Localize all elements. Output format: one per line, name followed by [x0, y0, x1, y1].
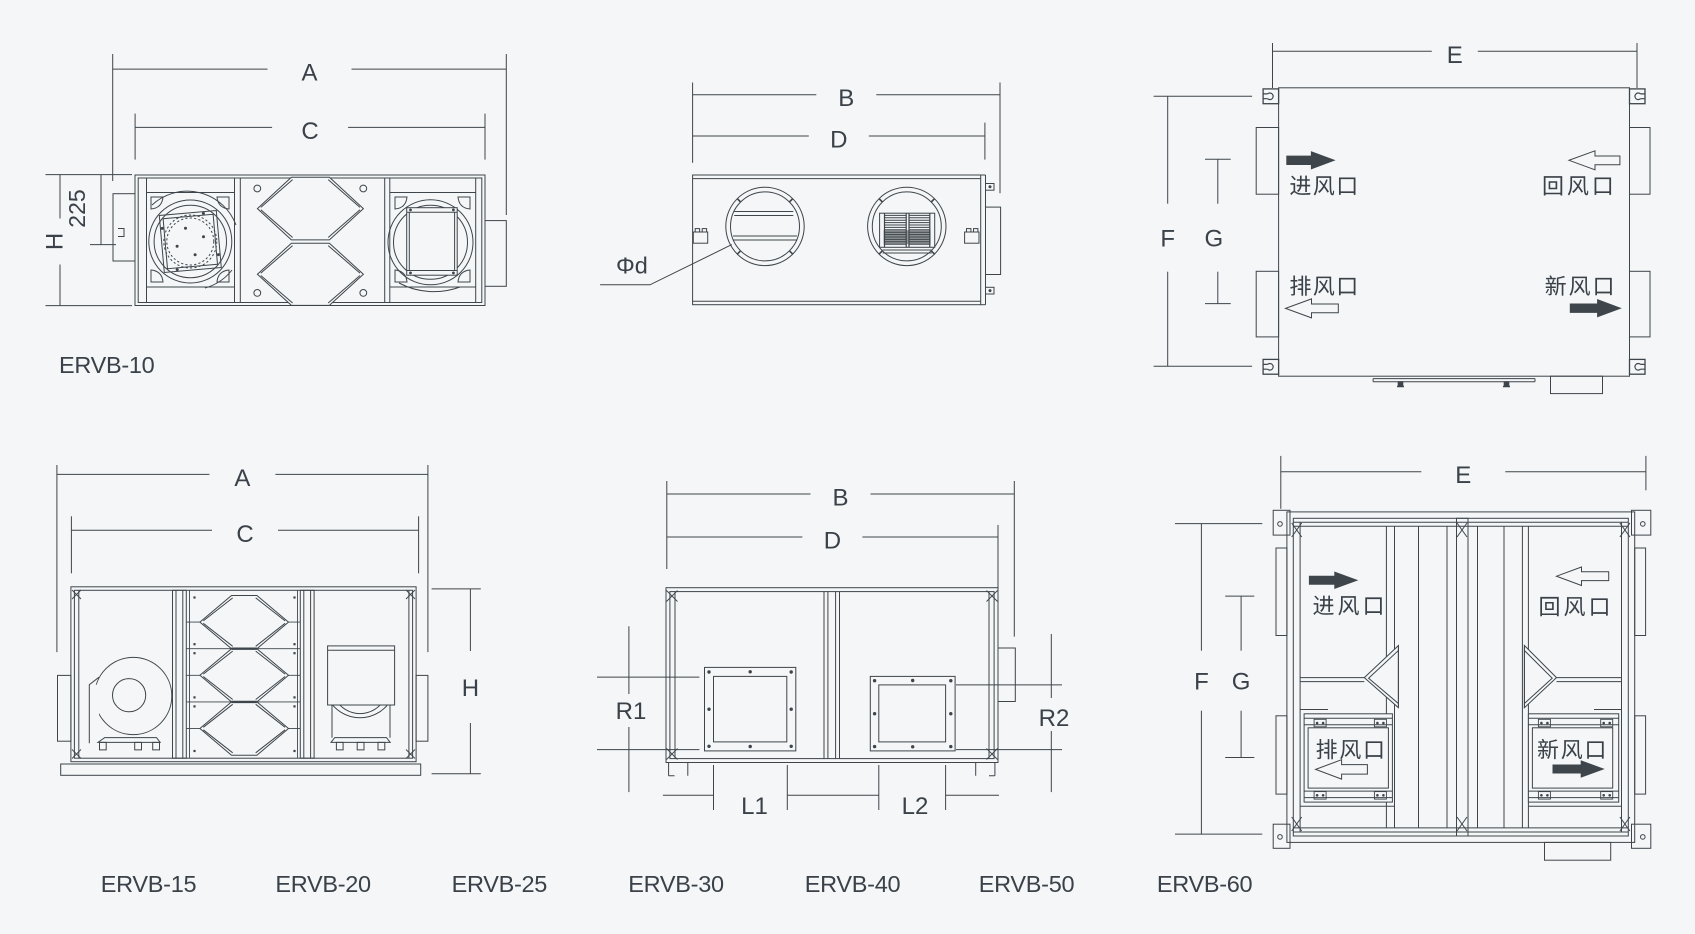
svg-text:ERVB-60: ERVB-60: [1157, 871, 1253, 897]
svg-text:E: E: [1455, 462, 1471, 489]
svg-text:L1: L1: [741, 793, 768, 820]
svg-text:ERVB-25: ERVB-25: [452, 871, 548, 897]
svg-text:ERVB-20: ERVB-20: [275, 871, 371, 897]
svg-text:B: B: [838, 85, 854, 112]
svg-text:A: A: [234, 465, 250, 492]
svg-text:R2: R2: [1039, 705, 1070, 732]
svg-text:ERVB-15: ERVB-15: [101, 871, 197, 897]
svg-text:D: D: [824, 528, 841, 555]
svg-text:ERVB-50: ERVB-50: [979, 871, 1075, 897]
svg-text:D: D: [830, 127, 847, 154]
svg-text:G: G: [1232, 669, 1251, 696]
svg-text:Φd: Φd: [616, 253, 648, 279]
svg-text:ERVB-40: ERVB-40: [805, 871, 901, 897]
svg-text:H: H: [42, 233, 69, 250]
svg-text:E: E: [1447, 42, 1463, 69]
svg-text:C: C: [236, 521, 253, 548]
svg-text:C: C: [301, 118, 318, 145]
svg-text:F: F: [1194, 669, 1209, 696]
svg-text:L2: L2: [902, 793, 929, 820]
svg-text:R1: R1: [616, 698, 647, 725]
svg-text:B: B: [832, 485, 848, 512]
svg-text:A: A: [301, 60, 317, 87]
svg-text:G: G: [1204, 226, 1223, 253]
svg-text:F: F: [1160, 226, 1175, 253]
svg-text:225: 225: [64, 189, 90, 227]
svg-text:ERVB-30: ERVB-30: [628, 871, 724, 897]
svg-text:H: H: [462, 675, 479, 702]
svg-text:ERVB-10: ERVB-10: [59, 352, 155, 378]
